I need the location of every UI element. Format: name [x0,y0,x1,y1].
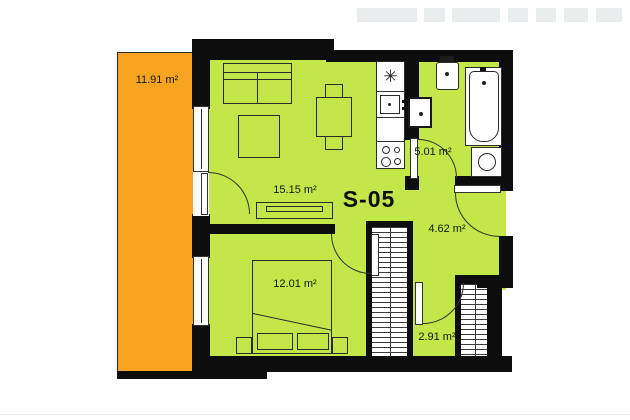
washbasin-drain-dot [419,112,423,116]
double-bed [252,260,332,354]
wall-top-right [326,50,513,62]
pillow [257,333,293,350]
unit-code-label: S-05 [334,186,404,213]
counter-divider [377,141,404,142]
closet-divider-line [390,227,391,359]
counter-divider [377,117,404,118]
coffee-table [238,115,280,158]
faded-neighbor-block [424,8,445,22]
counter-divider [377,91,404,92]
sofa [223,63,292,104]
window-frame-line [201,259,202,323]
faded-neighbor-block [596,8,622,22]
entrance-door-leaf [454,185,501,193]
balcony-slab [117,371,267,379]
tv-icon [266,206,323,212]
stove-burner [394,158,401,165]
toilet [436,62,459,90]
faded-neighbor-block [508,8,528,22]
bedroom-door-leaf [371,234,379,276]
nightstand-right [332,337,348,354]
faded-neighbor-block [564,8,588,22]
sofa-cushion-divider [257,72,258,103]
bedroom-window [193,256,209,326]
washing-machine-drum [478,153,496,171]
boiler-star-icon: ✳ [377,62,404,91]
storage-door-leaf [415,282,423,325]
tv-sideboard [256,202,333,219]
washing-machine [471,147,502,177]
wall-west-mid [192,214,210,258]
bathroom-area-label: 5.01 m² [398,146,468,158]
pillow [297,333,329,350]
faucet-mark [402,107,407,110]
stove-burner [382,146,390,154]
storage-area-label: 2.91 m² [402,331,472,343]
bathtub-faucet-mark [480,67,486,71]
sink-drain-dot [388,103,391,106]
floor-plan: ✳ 11.91 m² 15.15 m² S-05 5.01 m² [0,0,630,420]
faded-neighbor-block [452,8,500,22]
living-area-label: 15.15 m² [260,184,330,196]
window-frame-line [201,109,202,169]
bathroom-door-leaf [410,138,418,179]
wall-living-bedroom [203,224,335,234]
blanket-fold-line [253,313,331,331]
toilet-drain-dot [445,72,449,76]
stove-burner [381,157,391,167]
balcony-area [117,52,194,372]
wall-east-lower [487,282,501,372]
washbasin [408,97,432,128]
balcony-area-label: 11.91 m² [122,74,192,86]
faucet-mark [402,100,407,103]
hallway-area-label: 4.62 m² [412,223,482,235]
wall-top-left [192,39,334,60]
bathtub-drain-dot [482,81,486,85]
living-room-window [193,106,209,172]
faded-neighbor-block [357,8,417,22]
faded-neighbor-block [536,8,556,22]
dining-chair-top [325,84,343,98]
dining-chair-bottom [325,136,343,150]
wall-west-upper [192,39,210,109]
closet-divider-line [475,284,476,358]
dining-table [316,97,352,137]
nightstand-left [236,337,252,354]
wall-bottom [192,356,512,372]
bedroom-area-label: 12.01 m² [260,278,330,290]
bathtub [465,67,502,146]
storage-closet-shelves [461,284,489,358]
page-footer-line [0,414,630,415]
balcony-door-leaf [201,173,208,215]
